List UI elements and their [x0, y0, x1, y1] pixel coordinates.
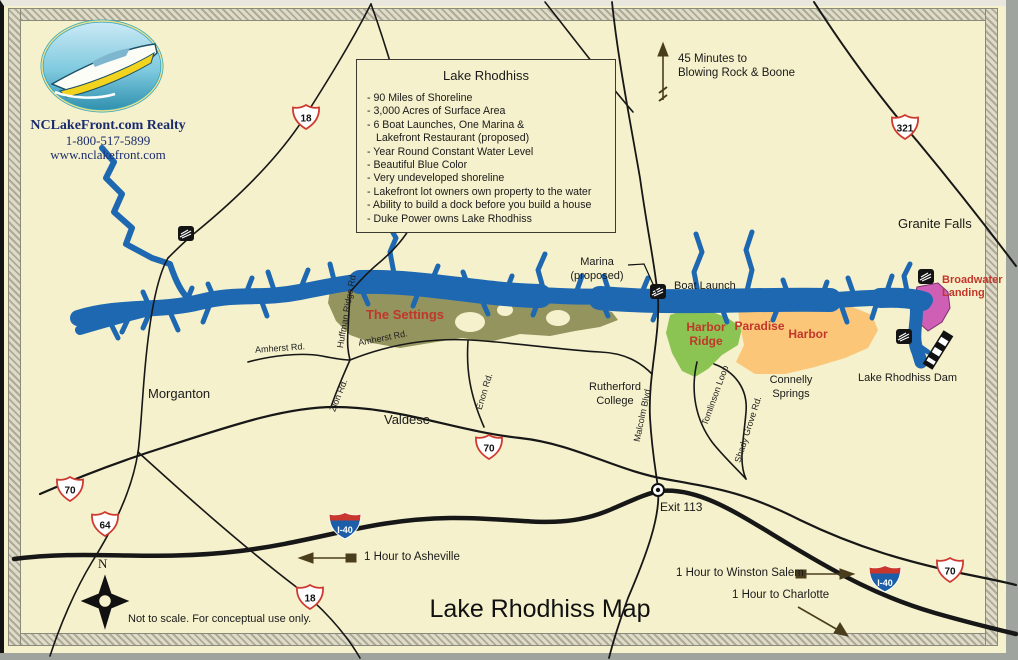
lake-rhodhiss-map-page: { "brand": { "name": "NCLakeFront.com Re…: [0, 0, 1018, 660]
info-item: - Duke Power owns Lake Rhodhiss: [367, 213, 605, 226]
shield-us70-mid: 70: [474, 434, 504, 461]
info-item: - Lakefront lot owners own property to t…: [367, 186, 605, 199]
shield-nc18-south: 18: [295, 584, 325, 611]
compass-rose: [82, 576, 128, 628]
boat-launch-icon: [896, 329, 912, 344]
shield-text: I-40: [868, 565, 902, 593]
info-item: - 90 Miles of Shoreline: [367, 92, 605, 105]
brand-name: NCLakeFront.com Realty: [18, 118, 198, 134]
lake-info-box: Lake Rhodhiss - 90 Miles of Shoreline - …: [356, 59, 616, 233]
town-label-valdese: Valdese: [384, 412, 430, 428]
shield-us70-west: 70: [55, 476, 85, 503]
shield-us321: 321: [890, 114, 920, 141]
shield-us64: 64: [90, 511, 120, 538]
poi-label-boat-launch: Boat Launch: [674, 280, 736, 294]
boat-launch-icon: [918, 269, 934, 284]
brand-phone: 1-800-517-5899: [18, 134, 198, 148]
shield-text: I-40: [328, 512, 362, 540]
arrow-label-charlotte: 1 Hour to Charlotte: [732, 588, 829, 602]
shield-i40-east: I-40: [868, 565, 902, 593]
development-label-broadwater-landing: Broadwater Landing: [942, 274, 1008, 299]
road-malcolm: [609, 2, 658, 658]
info-item: - Very undeveloped shoreline: [367, 172, 605, 185]
development-label-paradise: Paradise: [732, 320, 787, 334]
arrow-label-asheville: 1 Hour to Asheville: [364, 550, 460, 564]
info-item: - 6 Boat Launches, One Marina &: [367, 119, 605, 132]
logo-block: NCLakeFront.com Realty 1-800-517-5899 ww…: [18, 18, 198, 162]
poi-label-dam: Lake Rhodhiss Dam: [858, 372, 957, 386]
info-item: - Year Round Constant Water Level: [367, 146, 605, 159]
shield-text: 64: [90, 511, 120, 538]
boat-launch-icon: [178, 226, 194, 241]
town-label-granite-falls: Granite Falls: [898, 216, 972, 232]
info-item: Lakefront Restaurant (proposed): [367, 132, 605, 145]
exit-113-marker: [652, 484, 664, 496]
road-amherst-west: [248, 354, 350, 362]
town-label-connelly-springs: Connelly Springs: [760, 374, 822, 402]
shield-text: 70: [474, 434, 504, 461]
info-item: - Beautiful Blue Color: [367, 159, 605, 172]
development-label-the-settings: The Settings: [360, 308, 450, 323]
shield-text: 18: [295, 584, 325, 611]
poi-label-exit-113: Exit 113: [660, 500, 702, 515]
town-label-morganton: Morganton: [148, 386, 210, 402]
shield-us70-east: 70: [935, 557, 965, 584]
road-nc18-north: [168, 4, 371, 258]
poi-label-marina: Marina (proposed): [566, 256, 628, 284]
info-item: - 3,000 Acres of Surface Area: [367, 105, 605, 118]
shield-text: 321: [890, 114, 920, 141]
compass-north-label: N: [98, 556, 107, 572]
info-box-title: Lake Rhodhiss: [367, 68, 605, 83]
shield-nc18-north: 18: [291, 104, 321, 131]
disclaimer-text: Not to scale. For conceptual use only.: [128, 613, 311, 625]
development-label-harbor-ridge: Harbor Ridge: [676, 321, 736, 349]
arrow-label-winston-salem: 1 Hour to Winston Salem: [676, 566, 804, 580]
town-label-rutherford-college: Rutherford College: [584, 381, 646, 409]
map-title: Lake Rhodhiss Map: [340, 595, 740, 624]
boat-launch-icon: [650, 284, 666, 299]
info-item: - Ability to build a dock before you bui…: [367, 199, 605, 212]
shield-text: 70: [935, 557, 965, 584]
shield-i40-west: I-40: [328, 512, 362, 540]
shield-text: 70: [55, 476, 85, 503]
brand-website[interactable]: www.nclakefront.com: [18, 148, 198, 162]
shield-text: 18: [291, 104, 321, 131]
arrow-label-blowing-rock: 45 Minutes to Blowing Rock & Boone: [678, 52, 795, 81]
development-label-harbor: Harbor: [784, 328, 832, 342]
